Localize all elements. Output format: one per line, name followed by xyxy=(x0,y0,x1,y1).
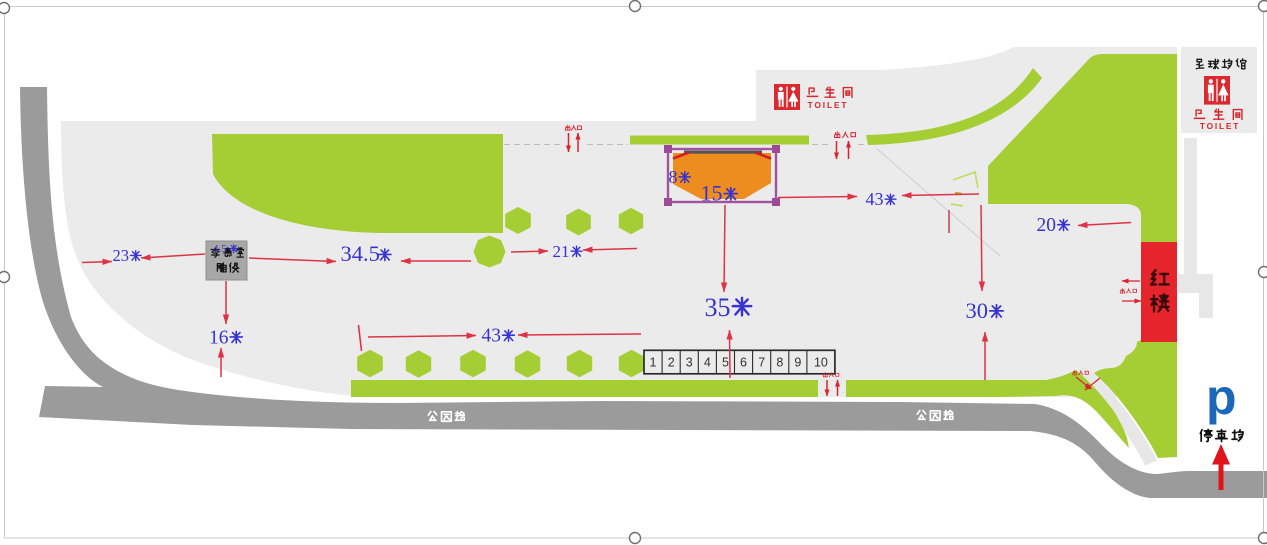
svg-text:1: 1 xyxy=(650,356,657,370)
svg-text:15: 15 xyxy=(701,181,723,206)
svg-text:23: 23 xyxy=(113,246,130,265)
svg-text:TOILET: TOILET xyxy=(1200,121,1240,131)
svg-text:10: 10 xyxy=(814,356,828,370)
svg-text:4.5: 4.5 xyxy=(213,243,227,255)
svg-text:43: 43 xyxy=(866,189,884,209)
svg-text:7: 7 xyxy=(758,356,765,370)
svg-text:8: 8 xyxy=(776,356,783,370)
svg-text:20: 20 xyxy=(1037,215,1057,236)
svg-text:8: 8 xyxy=(669,167,678,187)
svg-text:30: 30 xyxy=(966,298,989,323)
svg-text:9: 9 xyxy=(794,356,801,370)
svg-text:2: 2 xyxy=(668,356,675,370)
svg-text:21: 21 xyxy=(553,242,570,261)
svg-text:34.5: 34.5 xyxy=(341,241,380,266)
svg-text:5: 5 xyxy=(722,356,729,370)
svg-text:TOILET: TOILET xyxy=(808,100,849,110)
svg-text:43: 43 xyxy=(482,326,502,347)
svg-text:6: 6 xyxy=(740,356,747,370)
svg-text:3: 3 xyxy=(686,356,693,370)
svg-text:4: 4 xyxy=(704,356,711,370)
svg-text:p: p xyxy=(1206,369,1237,425)
svg-text:16: 16 xyxy=(209,328,229,349)
svg-text:35: 35 xyxy=(705,293,731,322)
